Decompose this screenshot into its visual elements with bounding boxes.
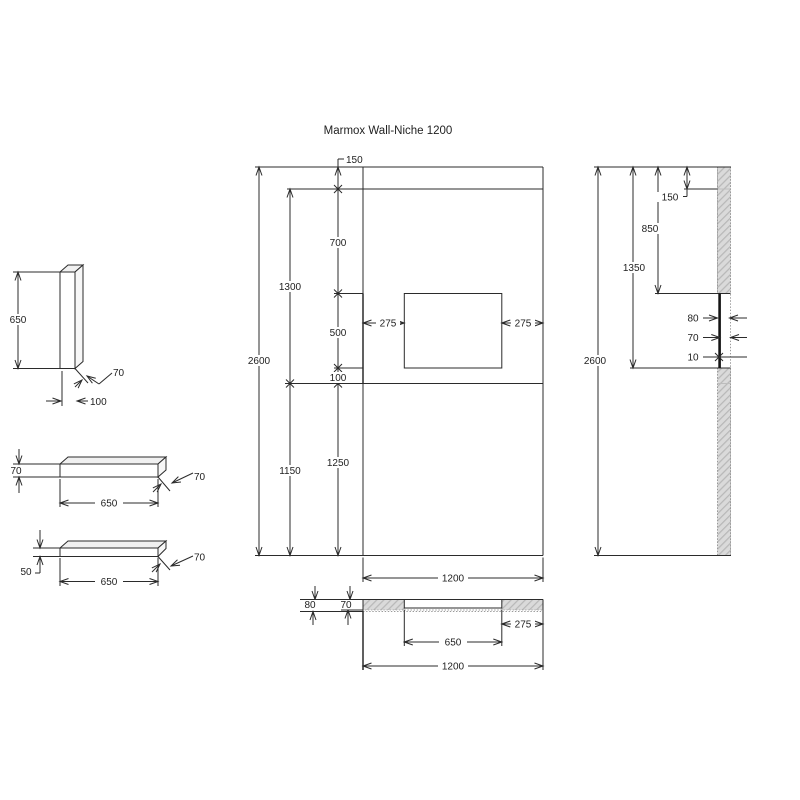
dim-plan-total-width: 1200 — [442, 662, 465, 673]
dim-shelf-50-length: 650 — [101, 577, 118, 588]
dim-side-top-to-niche-bottom: 1350 — [623, 263, 646, 274]
plan-niche-cutout — [404, 600, 502, 609]
drawing-page: Marmox Wall-Niche 1200 150 700 — [0, 0, 800, 800]
dim-plan-niche-width: 650 — [445, 638, 462, 649]
dim-front-lower-panel-height: 1150 — [279, 466, 301, 477]
dim-front-total-width: 1200 — [442, 574, 465, 585]
dim-shelf-70-length: 650 — [101, 499, 118, 510]
page-background — [0, 0, 800, 800]
dim-side-total-depth: 80 — [687, 314, 699, 325]
dim-shelf-50-thickness: 50 — [20, 567, 32, 578]
dim-front-niche-margin-right: 275 — [515, 319, 532, 330]
dim-front-niche-height: 500 — [330, 328, 347, 339]
dim-plan-niche-margin-right: 275 — [515, 620, 532, 631]
dim-front-niche-bottom-to-joint: 100 — [330, 373, 347, 384]
dim-vertical-board-width: 100 — [90, 397, 107, 408]
dim-plan-total-depth: 80 — [304, 600, 316, 611]
dim-side-total-height: 2600 — [584, 356, 607, 367]
dim-front-floor-to-niche-bottom: 1250 — [327, 458, 350, 469]
dim-side-board-thickness: 70 — [687, 333, 699, 344]
dim-front-total-height: 2600 — [248, 356, 271, 367]
dim-front-offset-top: 150 — [346, 155, 363, 166]
dim-shelf-70-depth: 70 — [194, 472, 206, 483]
dim-vertical-board-height: 650 — [10, 315, 27, 326]
dim-shelf-50-depth: 70 — [194, 553, 206, 564]
drawing-title: Marmox Wall-Niche 1200 — [324, 125, 453, 137]
dim-side-joint-to-niche-top: 850 — [642, 224, 659, 235]
dim-front-niche-margin-left: 275 — [380, 319, 397, 330]
front-niche-opening — [404, 294, 502, 369]
dim-front-joint-to-niche-top: 700 — [330, 238, 347, 249]
dim-shelf-70-thickness: 70 — [10, 466, 22, 477]
dim-front-upper-panel-height: 1300 — [279, 282, 302, 293]
dim-plan-board-thickness: 70 — [340, 600, 352, 611]
dim-side-offset-top: 150 — [662, 193, 679, 204]
dim-side-niche-back-thickness: 10 — [687, 353, 699, 364]
technical-drawing-canvas: Marmox Wall-Niche 1200 150 700 — [0, 0, 800, 800]
dim-vertical-board-thickness: 70 — [113, 368, 125, 379]
